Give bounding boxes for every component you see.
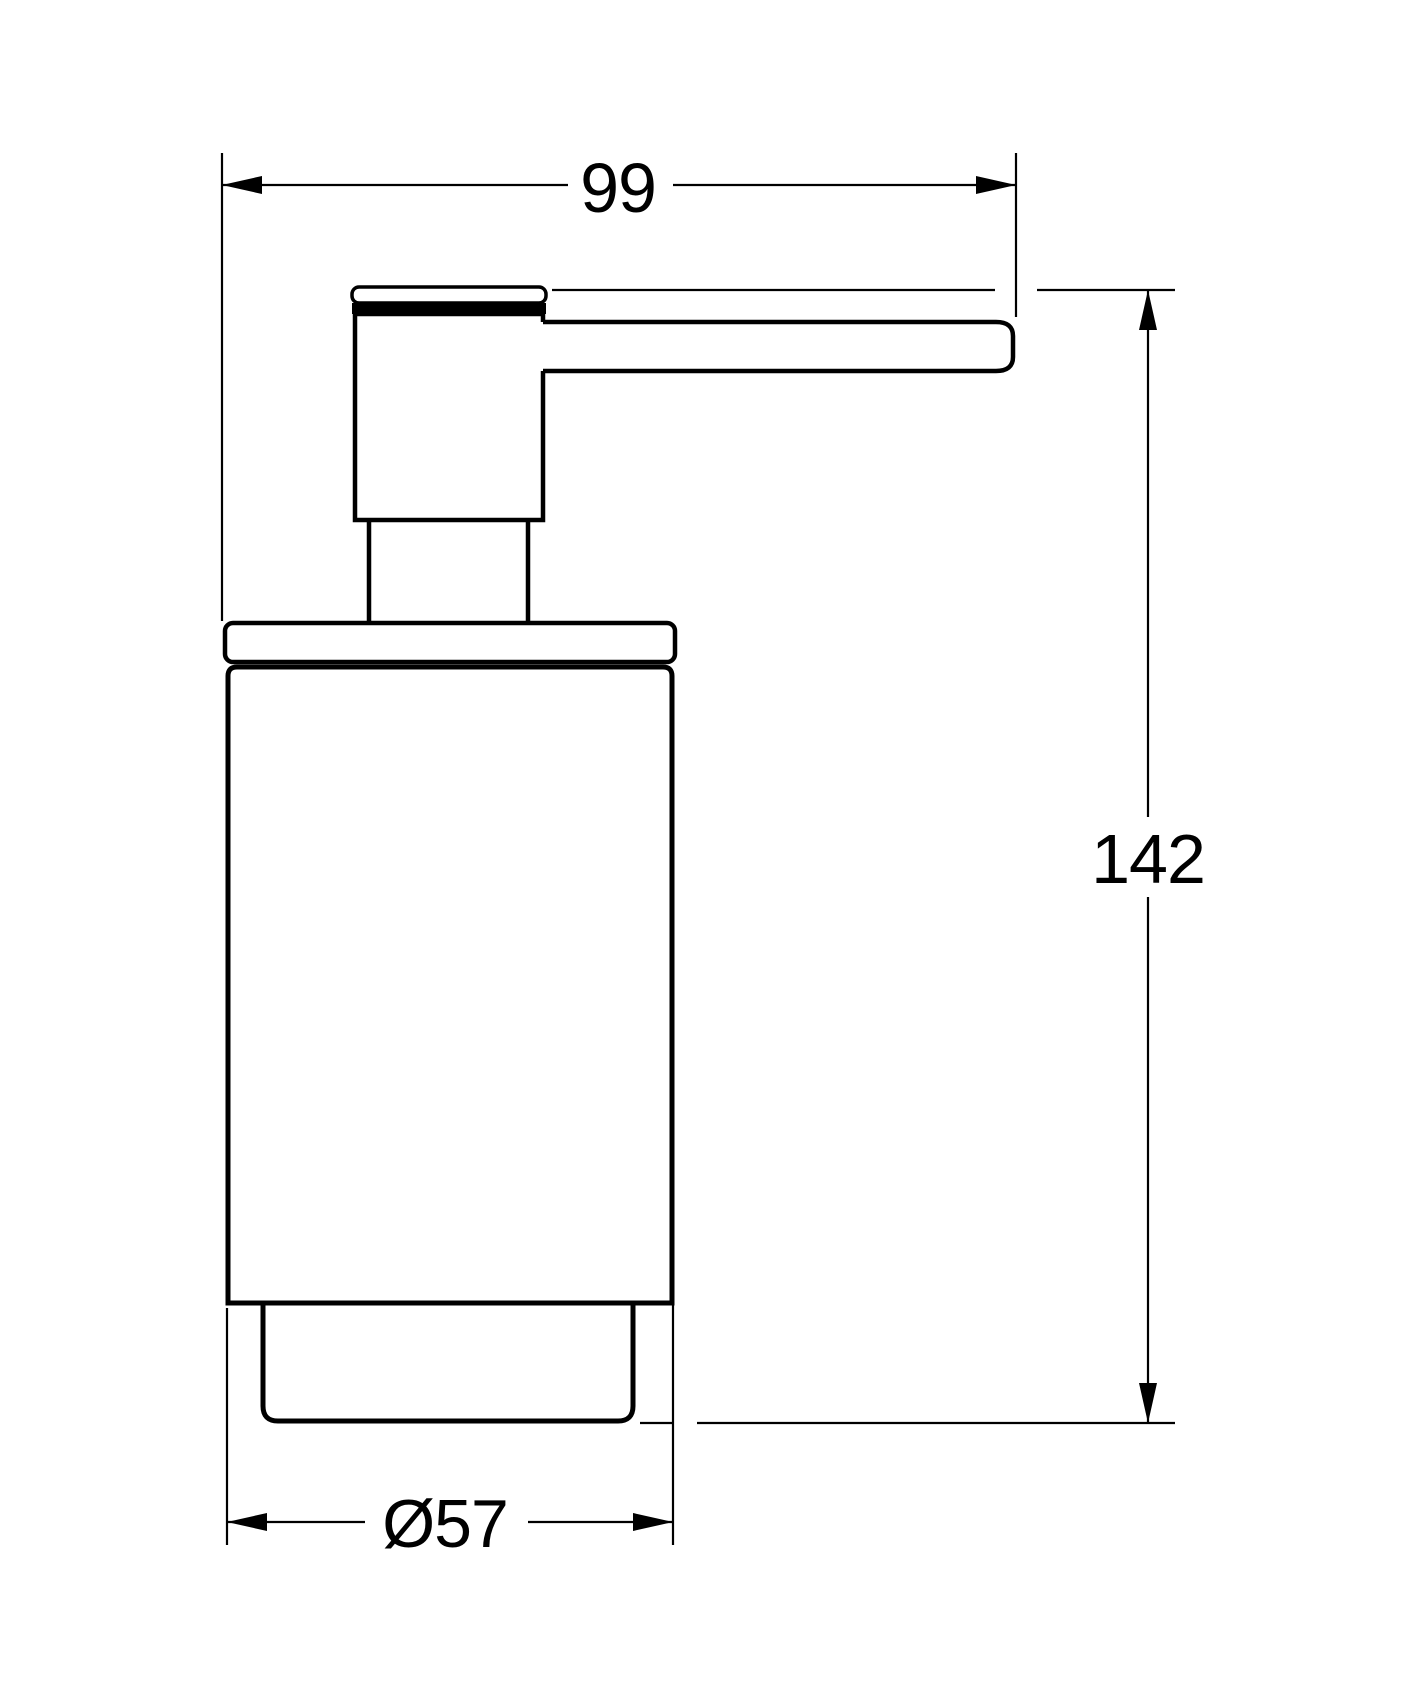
dimension-diameter-57: Ø57	[227, 1305, 673, 1562]
diameter-arrow-left	[227, 1513, 267, 1531]
soap-dispenser-dimension-diagram: 99 142 Ø57	[0, 0, 1418, 1700]
diameter-dimension-label: Ø57	[382, 1486, 508, 1562]
width-dimension-label: 99	[580, 149, 656, 227]
height-dimension-label: 142	[1091, 820, 1205, 898]
pump-cap-top	[352, 287, 546, 303]
glass-body	[228, 667, 672, 1303]
technical-drawing-page: 99 142 Ø57	[0, 0, 1418, 1700]
pump-cap-seal-band	[352, 303, 546, 314]
spout-fill	[538, 322, 1013, 371]
pump-head	[355, 314, 543, 520]
width-arrow-left	[222, 176, 262, 194]
pump-neck	[369, 520, 528, 624]
height-arrow-top	[1139, 290, 1157, 330]
glass-base	[263, 1303, 633, 1421]
diameter-arrow-right	[633, 1513, 673, 1531]
dispenser-outline	[225, 287, 1013, 1421]
height-arrow-bottom	[1139, 1383, 1157, 1423]
width-arrow-right	[976, 176, 1016, 194]
collar	[225, 623, 675, 662]
dimension-width-99: 99	[222, 149, 1016, 621]
